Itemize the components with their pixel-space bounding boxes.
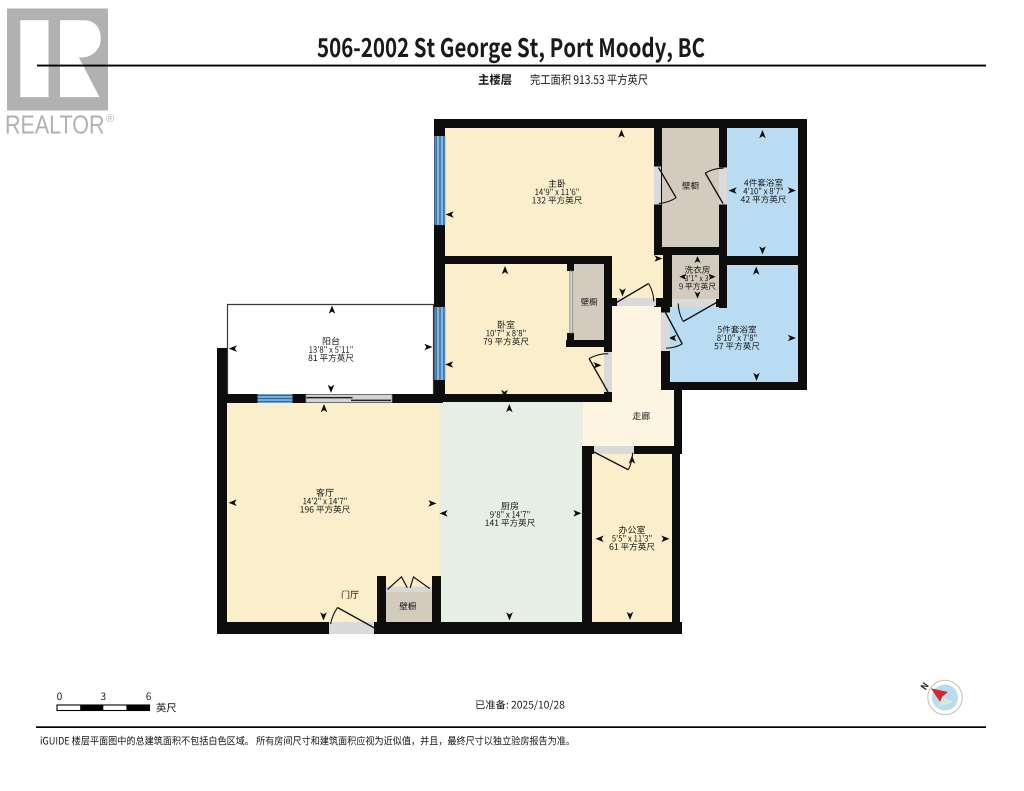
svg-text:®: ® [106,113,114,125]
svg-text:REALTOR: REALTOR [5,112,105,140]
